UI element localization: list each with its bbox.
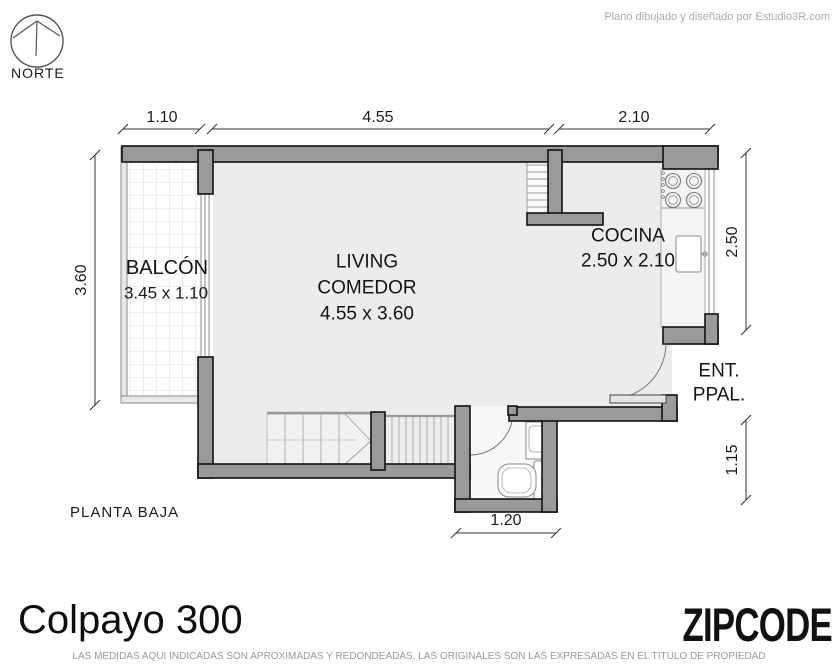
dim-label-right-upper: 2.50: [725, 226, 741, 257]
wall-bathroom-left: [455, 406, 470, 512]
wall-pier-balcony-top: [198, 150, 213, 194]
dim-line-2.50: [741, 148, 751, 335]
entrance-label-line2: PPAL.: [693, 386, 745, 405]
kitchen-fixtures: [661, 169, 707, 327]
stair-flight-left: [267, 414, 371, 465]
credit-text: Plano dibujado y diseñado por Estudio3R.…: [604, 12, 830, 23]
wall-bathroom-right: [542, 410, 557, 512]
dim-label-top-right: 2.10: [618, 110, 649, 126]
living-dims-label: 4.55 x 3.60: [320, 305, 414, 324]
zipcode-logo: ZIPCODE: [683, 601, 832, 648]
staircase: [267, 413, 455, 465]
wall-kitchen-top-right: [663, 146, 718, 169]
balcony-label: BALCÓN: [126, 258, 208, 278]
wall-kitchen-divider: [548, 150, 562, 217]
disclaimer-text: LAS MEDIDAS AQUI INDICADAS SON APROXIMAD…: [0, 652, 838, 662]
balcony-tile-grid: [124, 160, 201, 399]
floor-level-label: PLANTA BAJA: [70, 505, 179, 520]
dim-label-left: 3.60: [74, 264, 90, 295]
wall-kitchen-divider-stub: [527, 213, 603, 225]
wall-pier-balcony-bottom: [198, 357, 213, 478]
wall-kitchen-bottom-corner-vert: [705, 314, 718, 344]
wall-stair-pier: [371, 412, 385, 470]
living-label-line1: LIVING: [336, 253, 398, 272]
wall-bottom-right: [509, 407, 677, 421]
dim-label-bottom: 1.20: [490, 513, 521, 529]
north-compass-icon: [11, 15, 63, 67]
page-title: Colpayo 300: [18, 600, 243, 640]
ladder-shaft-outline: [527, 158, 549, 215]
dim-label-top-left: 1.10: [146, 110, 177, 126]
entry-door-leaf: [610, 395, 666, 403]
dim-line-1.15: [741, 415, 751, 505]
wall-bathroom-door-jamb: [508, 406, 517, 415]
dim-line-3.60: [90, 150, 100, 410]
kitchen-dims-label: 2.50 x 2.10: [581, 252, 675, 271]
kitchen-label: COCINA: [591, 227, 665, 246]
balcony-dims-label: 3.45 x 1.10: [124, 285, 208, 302]
floor-plan-drawing: [0, 0, 838, 670]
living-label-line2: COMEDOR: [317, 279, 416, 298]
floor-plan-page: Plano dibujado y diseñado por Estudio3R.…: [0, 0, 838, 670]
dim-line-1.20: [451, 528, 561, 538]
ladder-shaft: [527, 158, 549, 215]
dim-label-right-lower: 1.15: [725, 444, 741, 475]
entrance-label-line1: ENT.: [698, 362, 739, 381]
dim-label-top-mid: 4.55: [362, 110, 393, 126]
wall-living-bottom: [198, 464, 470, 478]
north-label: NORTE: [11, 66, 65, 80]
